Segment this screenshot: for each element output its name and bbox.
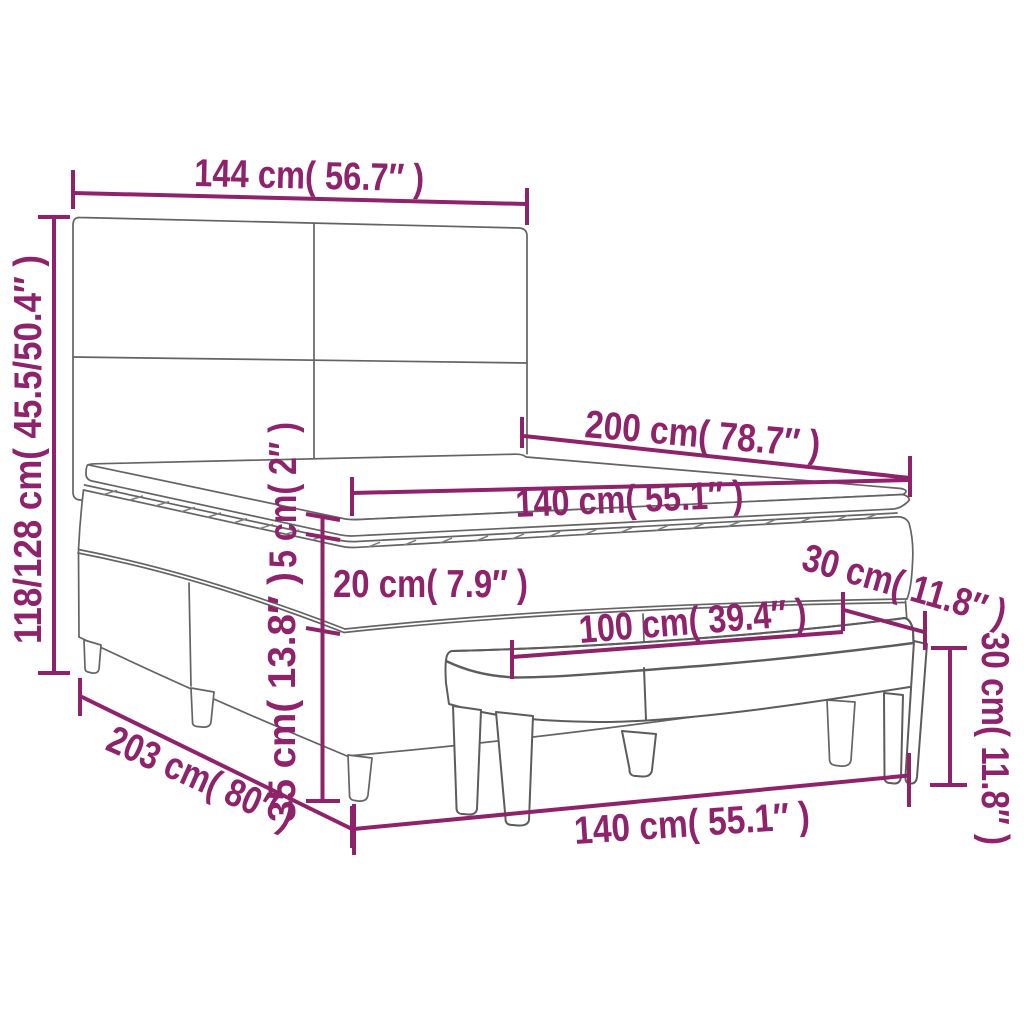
svg-text:144 cm( 56.7″ ): 144 cm( 56.7″ ) (194, 152, 425, 200)
svg-text:30 cm( 11.8″ ): 30 cm( 11.8″ ) (973, 632, 1016, 845)
svg-text:118/128 cm( 45.5/50.4″ ): 118/128 cm( 45.5/50.4″ ) (7, 255, 50, 644)
svg-text:20 cm( 7.9″ ): 20 cm( 7.9″ ) (333, 563, 528, 606)
svg-text:5 cm( 2″ ): 5 cm( 2″ ) (262, 422, 305, 568)
